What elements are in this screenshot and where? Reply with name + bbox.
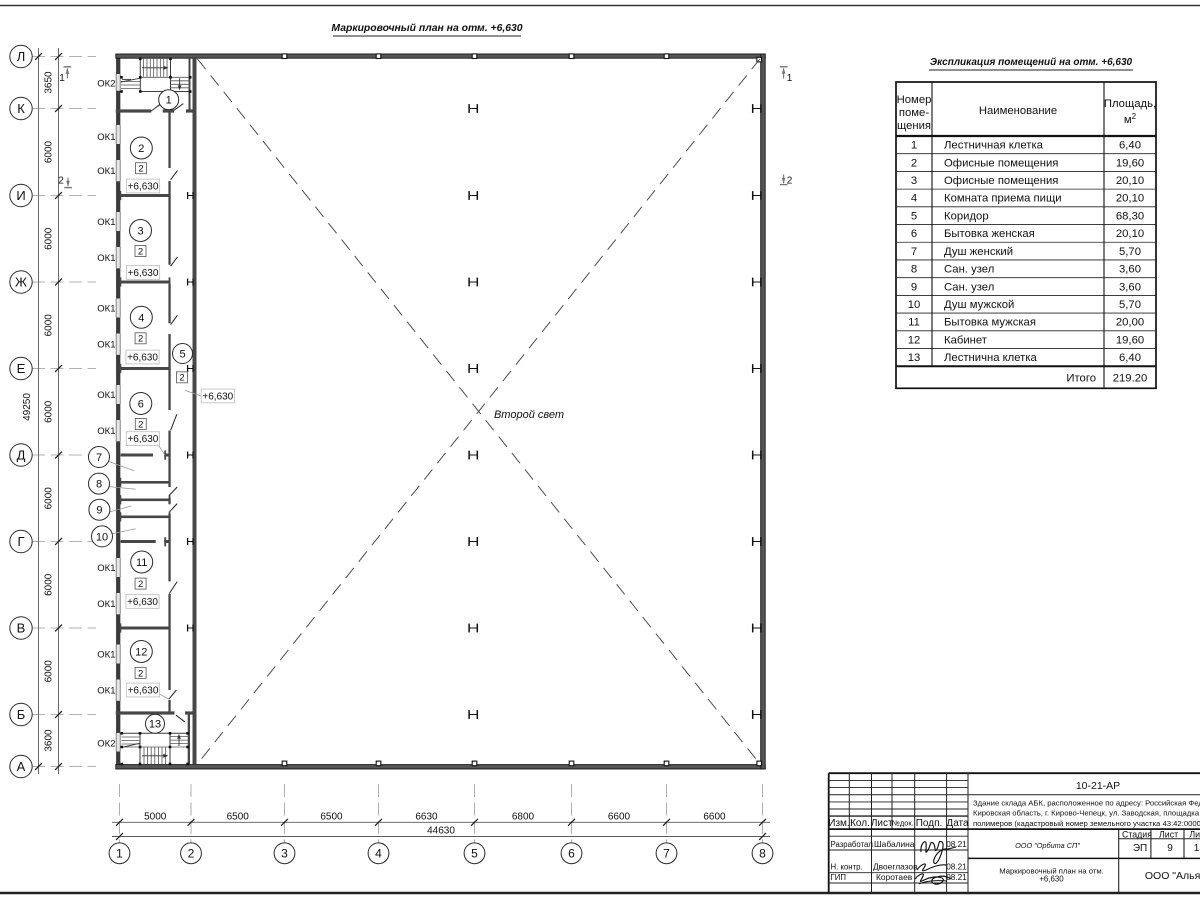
svg-text:6600: 6600	[608, 812, 631, 823]
svg-text:2: 2	[179, 373, 184, 384]
svg-text:6500: 6500	[227, 812, 250, 823]
svg-text:6500: 6500	[320, 812, 343, 823]
svg-text:6800: 6800	[512, 812, 535, 823]
svg-text:8: 8	[759, 847, 766, 861]
svg-text:+6,630: +6,630	[1039, 875, 1064, 884]
svg-text:ОК1: ОК1	[97, 426, 115, 437]
svg-text:6600: 6600	[703, 812, 726, 823]
svg-text:+6,630: +6,630	[202, 392, 233, 403]
svg-text:3650: 3650	[44, 71, 55, 94]
svg-text:6: 6	[911, 228, 917, 240]
svg-text:Б: Б	[17, 707, 26, 722]
svg-text:49250: 49250	[22, 393, 33, 421]
svg-text:3,60: 3,60	[1119, 281, 1141, 293]
svg-text:ОК1: ОК1	[97, 390, 115, 401]
svg-text:3,60: 3,60	[1119, 264, 1141, 276]
svg-text:2: 2	[138, 246, 143, 257]
svg-text:полимеров (кадастровый номер з: полимеров (кадастровый номер земельного …	[973, 819, 1200, 828]
svg-text:Дата: Дата	[946, 818, 969, 829]
svg-text:+6,630: +6,630	[127, 434, 158, 445]
svg-text:1: 1	[59, 73, 65, 84]
svg-text:В: В	[17, 621, 26, 636]
svg-text:Изм.: Изм.	[828, 818, 849, 829]
svg-text:6630: 6630	[415, 812, 438, 823]
svg-text:20,10: 20,10	[1116, 193, 1144, 205]
svg-text:Двоеглазов: Двоеглазов	[873, 861, 918, 871]
svg-text:+6,630: +6,630	[127, 597, 158, 608]
svg-text:8: 8	[911, 264, 917, 276]
svg-text:ОК1: ОК1	[97, 340, 115, 351]
svg-text:44630: 44630	[427, 826, 455, 837]
svg-text:9: 9	[96, 505, 102, 517]
svg-text:Лист: Лист	[1159, 829, 1178, 839]
svg-text:ГИП: ГИП	[831, 873, 846, 882]
svg-text:7: 7	[663, 847, 670, 861]
svg-text:ООО "Альянс: ООО "Альянс	[1145, 870, 1200, 882]
svg-text:6,40: 6,40	[1119, 140, 1141, 152]
svg-text:ООО "Орбита СП": ООО "Орбита СП"	[1015, 841, 1080, 850]
svg-text:3: 3	[911, 175, 917, 187]
svg-text:Стадия: Стадия	[1122, 829, 1152, 839]
svg-text:6,40: 6,40	[1119, 352, 1141, 364]
svg-text:Лист: Лист	[871, 818, 893, 829]
svg-text:Наименование: Наименование	[979, 105, 1057, 117]
svg-text:5,70: 5,70	[1119, 246, 1141, 258]
svg-text:219.20: 219.20	[1113, 373, 1148, 385]
svg-text:Ж: Ж	[15, 275, 27, 290]
svg-text:2: 2	[138, 143, 144, 155]
svg-text:19,60: 19,60	[1116, 157, 1144, 169]
svg-text:6000: 6000	[44, 140, 55, 163]
svg-text:Коротаев: Коротаев	[876, 872, 913, 882]
svg-text:Офисные помещения: Офисные помещения	[944, 157, 1058, 169]
svg-text:+6,630: +6,630	[128, 182, 159, 193]
svg-text:5000: 5000	[144, 812, 167, 823]
svg-text:20,10: 20,10	[1116, 228, 1144, 240]
svg-text:Коридор: Коридор	[944, 210, 989, 222]
svg-text:19,60: 19,60	[1116, 334, 1144, 346]
svg-text:ЭП: ЭП	[1133, 843, 1147, 854]
svg-text:ОК1: ОК1	[97, 166, 115, 177]
svg-text:10-21-АР: 10-21-АР	[1076, 780, 1120, 792]
svg-text:2: 2	[138, 419, 143, 430]
svg-text:Экспликация помещений на отм.: Экспликация помещений на отм. +6,630	[930, 57, 1133, 68]
svg-text:4: 4	[138, 312, 144, 324]
svg-text:Кабинет: Кабинет	[944, 334, 987, 346]
svg-text:+6,630: +6,630	[127, 353, 158, 364]
svg-text:12: 12	[908, 334, 921, 346]
svg-text:2: 2	[188, 847, 195, 861]
svg-text:5: 5	[471, 847, 478, 861]
svg-text:Здание склада АБК, расположенн: Здание склада АБК, расположенное по адре…	[973, 798, 1200, 807]
svg-text:2: 2	[911, 157, 917, 169]
svg-text:1: 1	[1194, 843, 1200, 854]
svg-text:Душ мужской: Душ мужской	[944, 299, 1014, 311]
svg-text:4: 4	[911, 193, 917, 205]
svg-text:И: И	[16, 188, 25, 203]
svg-text:13: 13	[908, 352, 921, 364]
svg-text:ОК1: ОК1	[97, 563, 115, 574]
svg-text:9: 9	[1167, 843, 1173, 854]
svg-text:ОК1: ОК1	[97, 132, 115, 143]
svg-text:11: 11	[136, 557, 147, 569]
svg-text:Бытовка мужская: Бытовка мужская	[944, 317, 1036, 329]
svg-text:1: 1	[166, 95, 172, 107]
svg-text:6: 6	[568, 847, 575, 861]
svg-text:6000: 6000	[44, 227, 55, 250]
svg-text:20,00: 20,00	[1116, 317, 1144, 329]
svg-text:№док.: №док.	[892, 819, 914, 828]
svg-text:поме-: поме-	[899, 107, 929, 119]
svg-text:10: 10	[96, 531, 108, 543]
svg-text:Лестнична клетка: Лестнична клетка	[944, 352, 1038, 364]
svg-text:Лестничная клетка: Лестничная клетка	[944, 140, 1044, 152]
svg-text:9: 9	[911, 281, 917, 293]
svg-text:Итого: Итого	[1066, 373, 1096, 385]
svg-text:ОК1: ОК1	[97, 303, 115, 314]
svg-text:Д: Д	[17, 448, 26, 463]
svg-text:2: 2	[138, 164, 143, 175]
svg-text:6000: 6000	[44, 487, 55, 510]
svg-text:11: 11	[908, 317, 920, 329]
svg-text:68,30: 68,30	[1116, 210, 1144, 222]
svg-text:7: 7	[96, 452, 102, 464]
svg-text:Комната приема пищи: Комната приема пищи	[944, 193, 1062, 205]
svg-text:Сан. узел: Сан. узел	[944, 264, 994, 276]
svg-text:Сан. узел: Сан. узел	[944, 281, 994, 293]
svg-text:08.21: 08.21	[946, 863, 967, 872]
svg-text:3: 3	[137, 226, 143, 238]
svg-text:Е: Е	[17, 361, 26, 376]
svg-text:6: 6	[138, 399, 144, 411]
svg-text:6000: 6000	[44, 314, 55, 337]
svg-text:5: 5	[911, 210, 917, 222]
svg-text:ОК2: ОК2	[97, 78, 115, 89]
svg-text:2: 2	[138, 668, 143, 679]
svg-text:ОК1: ОК1	[97, 686, 115, 697]
svg-text:6000: 6000	[44, 573, 55, 596]
svg-text:Бытовка женская: Бытовка женская	[944, 228, 1035, 240]
svg-text:К: К	[17, 101, 25, 116]
svg-text:20,10: 20,10	[1116, 175, 1144, 187]
svg-text:Второй свет: Второй свет	[494, 409, 564, 421]
svg-text:13: 13	[149, 719, 161, 731]
svg-text:Н. контр.: Н. контр.	[831, 862, 863, 871]
svg-text:4: 4	[375, 847, 382, 861]
svg-text:7: 7	[911, 246, 917, 258]
svg-text:Разработал: Разработал	[831, 840, 874, 849]
svg-text:8: 8	[96, 479, 102, 491]
svg-text:2: 2	[138, 579, 143, 590]
svg-text:ОК1: ОК1	[97, 217, 115, 228]
svg-text:1: 1	[116, 847, 123, 861]
svg-text:ОК2: ОК2	[97, 739, 115, 750]
svg-text:1: 1	[911, 140, 917, 152]
svg-text:08.21: 08.21	[946, 840, 967, 849]
svg-text:Кол.: Кол.	[850, 818, 870, 829]
svg-text:Кировская область, г. Кирово-Ч: Кировская область, г. Кирово-Чепецк, ул.…	[973, 809, 1200, 818]
svg-text:Офисные помещения: Офисные помещения	[944, 175, 1058, 187]
svg-text:ОК1: ОК1	[97, 649, 115, 660]
svg-text:3: 3	[281, 847, 288, 861]
svg-text:2: 2	[138, 334, 143, 345]
svg-text:5,70: 5,70	[1119, 299, 1141, 311]
svg-text:10: 10	[908, 299, 921, 311]
svg-text:2: 2	[58, 176, 64, 187]
svg-text:Лис: Лис	[1189, 829, 1200, 839]
svg-text:Л: Л	[17, 49, 26, 64]
svg-text:Маркировочный план на отм. +6,: Маркировочный план на отм. +6,630	[331, 23, 522, 34]
svg-text:1: 1	[787, 73, 793, 84]
svg-text:2: 2	[787, 176, 793, 187]
svg-text:6000: 6000	[44, 660, 55, 683]
svg-text:Г: Г	[17, 534, 24, 549]
svg-text:6000: 6000	[44, 400, 55, 423]
svg-text:+6,630: +6,630	[128, 268, 159, 279]
svg-text:+6,630: +6,630	[128, 686, 159, 697]
svg-text:12: 12	[135, 647, 147, 659]
svg-text:3600: 3600	[44, 729, 55, 752]
svg-text:ОК1: ОК1	[97, 253, 115, 264]
svg-text:5: 5	[179, 349, 185, 361]
svg-text:Шабалина: Шабалина	[874, 839, 915, 849]
svg-text:Площадь,: Площадь,	[1104, 98, 1156, 110]
svg-text:ОК1: ОК1	[97, 599, 115, 610]
svg-text:Душ женский: Душ женский	[944, 246, 1013, 258]
svg-text:А: А	[17, 759, 26, 774]
svg-text:Номер: Номер	[897, 94, 932, 106]
svg-text:Подп.: Подп.	[916, 818, 943, 829]
svg-text:щения: щения	[897, 120, 931, 132]
